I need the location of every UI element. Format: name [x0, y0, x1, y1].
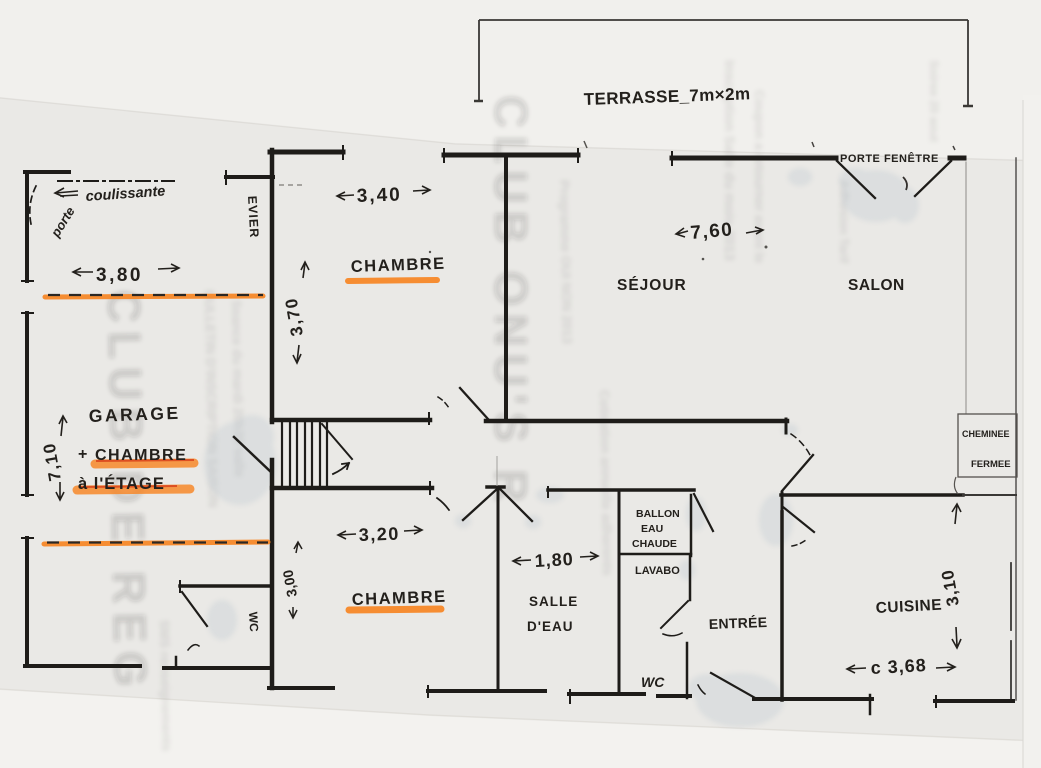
svg-text:GARAGE: GARAGE	[88, 403, 180, 426]
svg-text:CHAUDE: CHAUDE	[632, 538, 677, 550]
svg-text:SMS renseignements: SMS renseignements	[157, 620, 174, 752]
svg-text:WC: WC	[246, 611, 261, 632]
svg-text:CHEMINEE: CHEMINEE	[962, 429, 1010, 439]
svg-text:CHAMBRE: CHAMBRE	[351, 255, 446, 276]
svg-text:CHAMBRE: CHAMBRE	[95, 447, 187, 464]
svg-text:EVIER: EVIER	[245, 195, 261, 238]
svg-text:Programme OUI NON 2013: Programme OUI NON 2013	[557, 180, 575, 344]
svg-text:1,80: 1,80	[534, 549, 574, 571]
svg-text:c 3,68: c 3,68	[870, 655, 927, 678]
svg-text:ENTRÉE: ENTRÉE	[709, 614, 768, 632]
svg-text:FERMEE: FERMEE	[971, 459, 1011, 470]
svg-text:CHAMBRE: CHAMBRE	[352, 588, 447, 609]
svg-text:D'EAU: D'EAU	[527, 619, 573, 634]
svg-text:LAVABO: LAVABO	[635, 565, 680, 577]
svg-text:à l'ÉTAGE: à l'ÉTAGE	[78, 474, 165, 493]
svg-text:WC: WC	[641, 674, 665, 690]
svg-text:BALLON: BALLON	[636, 508, 680, 520]
svg-text:3,80: 3,80	[96, 265, 143, 286]
svg-text:PORTE FENÊTRE: PORTE FENÊTRE	[840, 152, 939, 165]
svg-text:CUISINE: CUISINE	[875, 597, 942, 617]
svg-text:Coupon a retourner avant le: Coupon a retourner avant le	[752, 90, 767, 263]
svg-text:+: +	[78, 446, 87, 463]
svg-text:SALLE: SALLE	[529, 594, 578, 609]
svg-text:SALON: SALON	[848, 277, 905, 294]
svg-text:SÉJOUR: SÉJOUR	[617, 277, 687, 294]
svg-text:3,20: 3,20	[358, 524, 400, 545]
svg-text:7,60: 7,60	[690, 219, 735, 244]
svg-text:EAU: EAU	[641, 523, 663, 535]
svg-text:Soiree 20 aout: Soiree 20 aout	[927, 60, 941, 142]
svg-text:3,40: 3,40	[356, 184, 402, 207]
